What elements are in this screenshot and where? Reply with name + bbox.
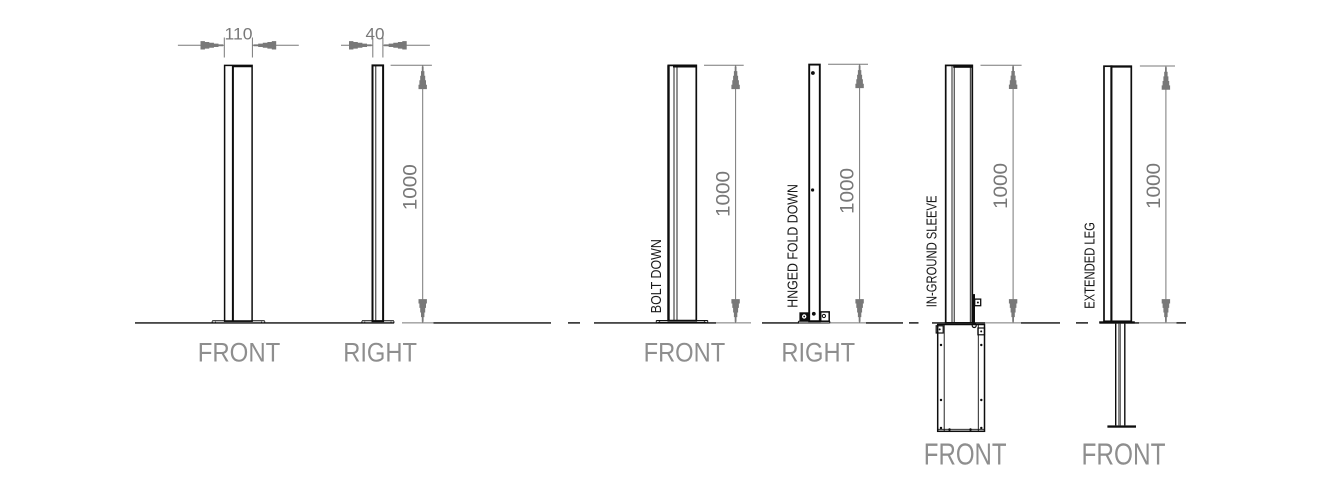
- svg-text:1000: 1000: [401, 164, 422, 210]
- svg-text:110: 110: [225, 26, 253, 44]
- svg-text:RIGHT: RIGHT: [781, 337, 855, 367]
- svg-text:1000: 1000: [838, 168, 859, 214]
- svg-text:1000: 1000: [714, 171, 735, 217]
- svg-text:RIGHT: RIGHT: [343, 337, 417, 367]
- svg-text:1000: 1000: [1144, 163, 1165, 209]
- svg-text:FRONT: FRONT: [1082, 436, 1166, 471]
- svg-text:FRONT: FRONT: [644, 337, 726, 367]
- svg-text:1000: 1000: [991, 163, 1012, 209]
- svg-text:EXTENDED LEG: EXTENDED LEG: [1082, 222, 1099, 309]
- svg-text:FRONT: FRONT: [924, 436, 1007, 471]
- svg-text:40: 40: [366, 26, 385, 44]
- svg-text:FRONT: FRONT: [198, 337, 281, 367]
- svg-text:BOLT DOWN: BOLT DOWN: [648, 239, 665, 313]
- svg-text:HNGED FOLD DOWN: HNGED FOLD DOWN: [784, 184, 801, 308]
- svg-text:IN-GROUND SLEEVE: IN-GROUND SLEEVE: [923, 196, 940, 308]
